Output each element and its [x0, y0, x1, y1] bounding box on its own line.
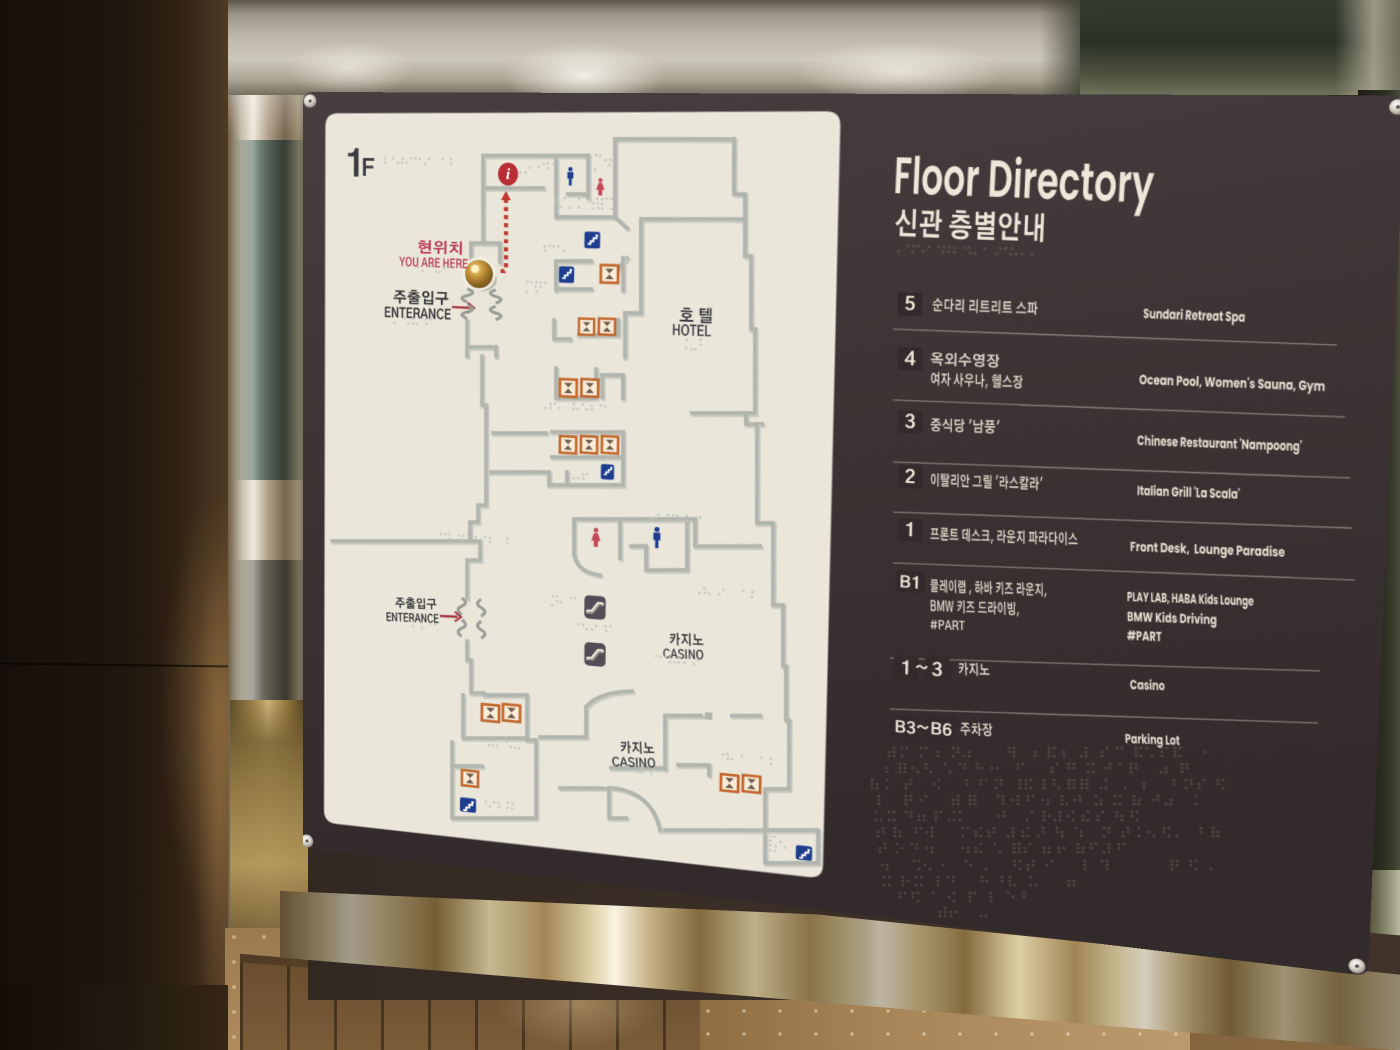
svg-text:i: i — [506, 166, 510, 183]
